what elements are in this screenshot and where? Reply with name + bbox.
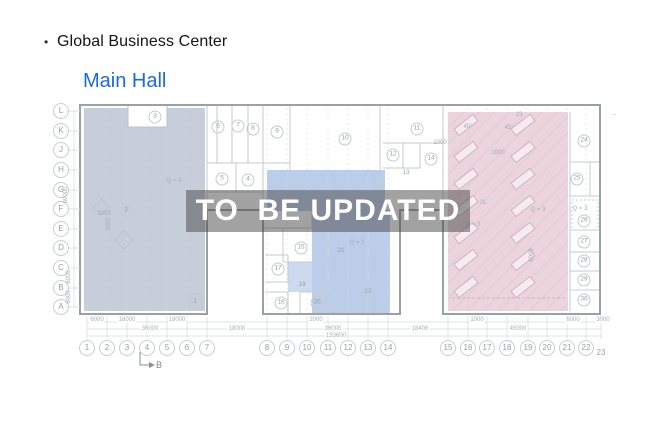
page: • Global Business Center Main Hall	[0, 0, 660, 440]
section-marker-b-label: B	[156, 360, 162, 370]
watermark-overlay: TO BE UPDATED	[186, 190, 470, 232]
section-marker-b	[140, 352, 155, 368]
